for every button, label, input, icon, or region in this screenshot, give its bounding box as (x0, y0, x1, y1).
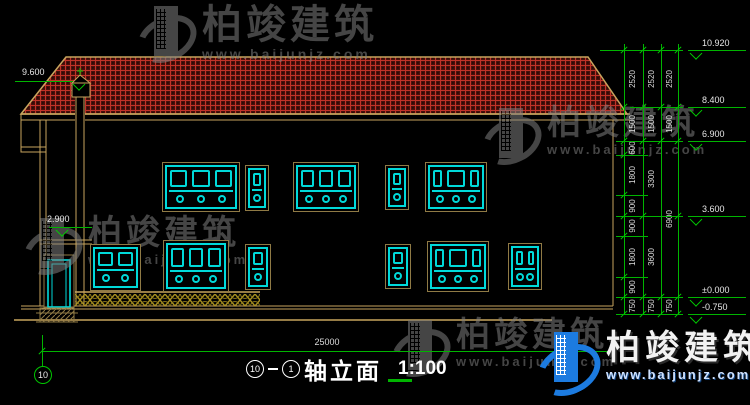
brand-url: www.baijunjz.com (606, 367, 750, 382)
cad-elevation-drawing: 柏竣建筑 www.baijunjz.com 柏竣建筑 www.baijunjz.… (0, 0, 750, 405)
baijun-logo-icon (538, 330, 598, 396)
brand-name: 柏竣建筑 (606, 330, 750, 367)
brand-logo: 柏竣建筑 www.baijunjz.com (538, 330, 750, 396)
